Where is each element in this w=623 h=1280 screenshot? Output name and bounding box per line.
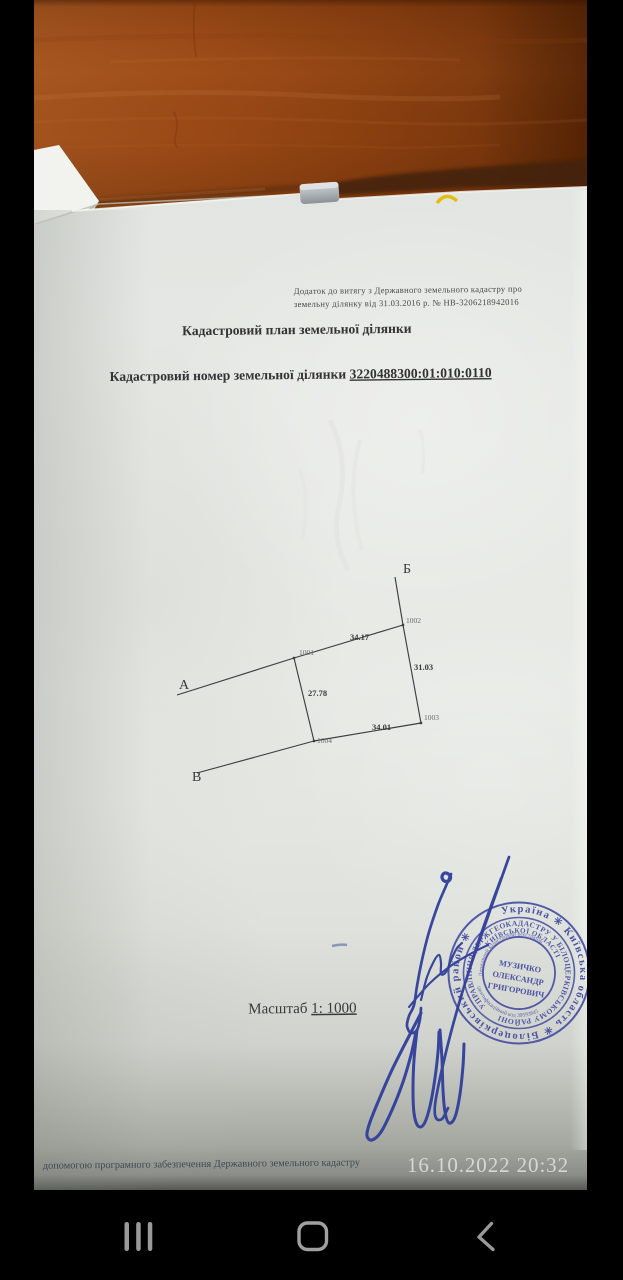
svg-text:1003: 1003 — [424, 713, 439, 722]
svg-text:1002: 1002 — [406, 616, 421, 625]
svg-text:31.03: 31.03 — [414, 662, 433, 672]
svg-text:В: В — [192, 770, 201, 785]
svg-text:Масштаб 1: 1000: Масштаб 1: 1000 — [248, 1000, 357, 1017]
svg-text:1001: 1001 — [299, 648, 314, 657]
svg-text:Б: Б — [403, 562, 411, 577]
svg-text:34.17: 34.17 — [350, 632, 370, 642]
svg-text:А: А — [179, 678, 190, 693]
svg-text:34.01: 34.01 — [372, 722, 391, 732]
svg-text:16.10.2022 20:32: 16.10.2022 20:32 — [407, 1153, 569, 1177]
svg-text:27.78: 27.78 — [308, 688, 327, 698]
svg-text:Кадастровий план земельної діл: Кадастровий план земельної ділянки — [182, 321, 412, 338]
svg-text:1004: 1004 — [317, 736, 332, 745]
